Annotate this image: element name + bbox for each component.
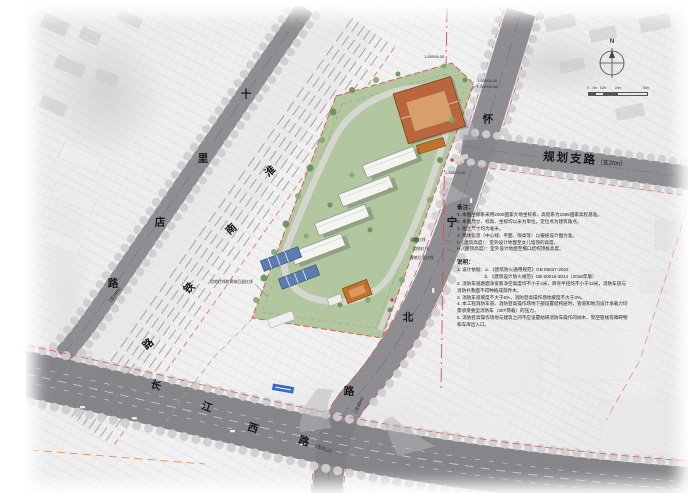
text-line: 1. 设计依据：a. 《建筑防火通用规范》GB 55037-2022 — [457, 267, 629, 274]
text-line: H（屋顶高度）：室外设计地面至檐口结构顶板高度。 — [457, 246, 609, 253]
text-line: 4. 本工程消防车道、消防登高操作场地下部设置结构层时，管道和地沟设计承载力均需… — [457, 301, 629, 315]
sheet-margin-left — [0, 0, 26, 495]
road-label-char: 怀 — [483, 112, 494, 127]
elevation-marker: 1-50006.00 — [424, 54, 444, 59]
scale-tick: 20m — [615, 86, 622, 90]
text-line: 3. 图上尺寸均为毫米。 — [457, 226, 609, 233]
road-label-char: 里 — [198, 151, 209, 166]
orange-boundary-line — [5, 448, 205, 464]
text-line: 5. 消防登高操作场地与建筑之间不应设置妨碍消防车操作的树木、架空管线等障碍物和… — [457, 315, 629, 329]
road-sign — [272, 383, 295, 394]
text-line: 1. 本图坐标系采用2000国家大地坐标系，高程系为1985国家高程基准。 — [457, 212, 609, 219]
notes-title: 备注： — [457, 203, 609, 211]
scale-tick: 5m — [593, 86, 598, 90]
sheet-margin-top — [0, 0, 700, 6]
road-label-char: 北 — [403, 310, 414, 325]
text-line: b. 《建筑设计防火规范》GB 50016-2014（2018年版） — [457, 274, 629, 281]
elevation-marker: 1-50003.00 — [445, 170, 465, 175]
instructions-title: 说明： — [457, 258, 629, 266]
leader-label: 用地红线和建筑后退红线 — [210, 279, 253, 285]
instructions-lines: 1. 设计依据：a. 《建筑防火通用规范》GB 55037-2022 b. 《建… — [457, 267, 629, 329]
road-label-char: 宁 — [447, 215, 458, 230]
instructions-block: 说明： 1. 设计依据：a. 《建筑防火通用规范》GB 55037-2022 b… — [457, 258, 629, 329]
road-label-char: 十 — [241, 87, 252, 102]
site-plan-sheet: N 0 5m 10m 20m 50m 规划支路（支20m） 十 里 店 路 （支… — [0, 0, 700, 495]
road-label-char: 店 — [155, 215, 166, 230]
scale-bar-line — [588, 92, 648, 96]
scale-tick: 50m — [643, 86, 650, 90]
leader-label: 道路红线 — [410, 237, 426, 243]
road-label-char: 路 — [344, 384, 355, 399]
sheet-margin-right — [688, 0, 700, 495]
scale-bar: 0 5m 10m 20m 50m — [588, 86, 652, 98]
leader-label: 建筑后退红线 — [410, 255, 433, 261]
elevation-marker: F-50004.08 — [477, 84, 497, 89]
notes-block: 备注： 1. 本图坐标系采用2000国家大地坐标系，高程系为1985国家高程基准… — [457, 203, 609, 253]
leader-label: 用地红线 — [413, 246, 429, 252]
north-arrow-icon — [600, 48, 624, 78]
elevation-marker: 1-50005.40 — [477, 78, 497, 83]
text-line: 2. 本图尺寸、标高、坐标均以米为单位，定位点为建筑角点。 — [457, 219, 609, 226]
notes-lines: 1. 本图坐标系采用2000国家大地坐标系，高程系为1985国家高程基准。2. … — [457, 212, 609, 253]
scale-tick: 0 — [587, 86, 589, 90]
road-name: 规划支路 — [543, 151, 598, 167]
text-line: 4. 单体信息（中心线、平面、限高等）以报规设计图为准。 — [457, 233, 609, 240]
text-line: 2. 消防车道路面净宽和净空高度均不小于4米，转弯半径均不小于12米，消防车道与… — [457, 281, 629, 295]
road-spec: （支20m） — [597, 160, 627, 168]
scale-tick: 10m — [600, 86, 607, 90]
north-label: N — [610, 39, 614, 45]
